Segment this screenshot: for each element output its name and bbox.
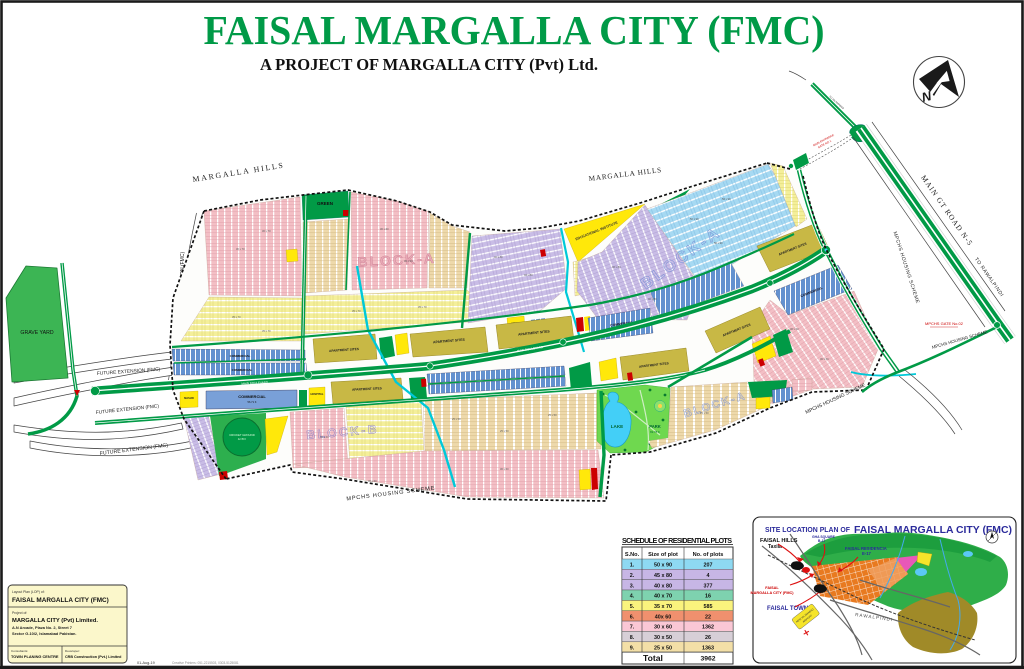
- svg-text:FUTURE EXTENSION (FMC): FUTURE EXTENSION (FMC): [96, 403, 160, 416]
- svg-text:16: 16: [705, 594, 711, 600]
- svg-text:S.No.: S.No.: [625, 552, 640, 558]
- svg-text:HOSPITAL: HOSPITAL: [311, 392, 324, 396]
- svg-text:E-17: E-17: [862, 551, 872, 556]
- svg-text:35 x 70: 35 x 70: [654, 604, 672, 610]
- svg-text:MPCHS HOUSING SCHEME: MPCHS HOUSING SCHEME: [931, 329, 988, 350]
- svg-text:B-17: B-17: [818, 539, 825, 543]
- svg-text:40 x 80: 40 x 80: [648, 297, 657, 301]
- svg-text:LAKE: LAKE: [611, 424, 624, 429]
- svg-text:25 x 50: 25 x 50: [500, 429, 509, 433]
- svg-text:SITE LOCATION PLAN OF: SITE LOCATION PLAN OF: [765, 525, 851, 534]
- svg-text:40 x 80: 40 x 80: [612, 265, 621, 269]
- svg-text:FAISAL MARGALLA CITY (FMC): FAISAL MARGALLA CITY (FMC): [204, 7, 825, 53]
- svg-text:25 x 50: 25 x 50: [654, 645, 672, 651]
- svg-text:40 x 70: 40 x 70: [654, 594, 672, 600]
- svg-text:50 x 90: 50 x 90: [714, 241, 723, 245]
- svg-text:30 x 60: 30 x 60: [380, 227, 389, 231]
- svg-text:25 x 50: 25 x 50: [452, 417, 461, 421]
- svg-text:GREEN: GREEN: [317, 201, 333, 206]
- svg-text:MASJID: MASJID: [184, 396, 194, 400]
- svg-text:A PROJECT OF MARGALLA CITY (Pv: A PROJECT OF MARGALLA CITY (Pvt) Ltd.: [260, 55, 598, 74]
- svg-text:Developer:: Developer:: [65, 649, 80, 653]
- svg-text:50 x 90: 50 x 90: [722, 197, 731, 201]
- svg-text:2.: 2.: [630, 573, 635, 579]
- svg-text:CRICKET GROUND: CRICKET GROUND: [229, 433, 254, 437]
- svg-text:30 x 60: 30 x 60: [500, 467, 509, 471]
- svg-text:30 x 70: 30 x 70: [236, 247, 245, 251]
- svg-text:45 x 80: 45 x 80: [654, 573, 672, 579]
- svg-text:Creative Printers: 051-2215503: Creative Printers: 051-2215503, 0303-512…: [172, 661, 239, 665]
- svg-text:30 x 70: 30 x 70: [262, 229, 271, 233]
- svg-text:3.: 3.: [630, 583, 635, 589]
- svg-text:Project of:: Project of:: [12, 611, 27, 615]
- svg-text:Total: Total: [643, 653, 663, 663]
- svg-text:30 x 60: 30 x 60: [368, 479, 377, 483]
- svg-text:GRAVE YARD: GRAVE YARD: [20, 330, 53, 336]
- svg-text:01-Aug-19: 01-Aug-19: [137, 661, 155, 665]
- svg-text:30 x 60: 30 x 60: [404, 259, 413, 263]
- svg-text:4.: 4.: [630, 594, 635, 600]
- svg-text:MPCHS GATE No.02: MPCHS GATE No.02: [925, 321, 964, 326]
- svg-text:MARGALLA CITY (FMC): MARGALLA CITY (FMC): [750, 591, 794, 595]
- svg-text:SCHEDULE OF RESIDENTIAL PLOTS: SCHEDULE OF RESIDENTIAL PLOTS: [622, 536, 732, 545]
- svg-text:FAISAL MARGALLA CITY (FMC): FAISAL MARGALLA CITY (FMC): [12, 597, 109, 604]
- svg-text:FAISAL: FAISAL: [765, 586, 779, 590]
- svg-text:3962: 3962: [700, 656, 715, 663]
- svg-text:30 x 60: 30 x 60: [654, 625, 672, 631]
- svg-text:Sector G-10/2, Islamabad Pakis: Sector G-10/2, Islamabad Pakistan.: [12, 631, 76, 636]
- svg-text:1362: 1362: [702, 625, 714, 631]
- svg-text:56.71 K: 56.71 K: [248, 400, 257, 404]
- svg-text:50 x 90: 50 x 90: [690, 217, 699, 221]
- svg-text:35 x 70: 35 x 70: [352, 309, 361, 313]
- svg-text:35 x 70: 35 x 70: [418, 305, 427, 309]
- svg-text:40 x 80: 40 x 80: [494, 255, 503, 259]
- svg-text:MARGALLA HILLS: MARGALLA HILLS: [192, 161, 285, 184]
- svg-text:207: 207: [704, 563, 713, 569]
- svg-text:8.: 8.: [630, 635, 635, 641]
- svg-text:MAIN GT ROAD N-5: MAIN GT ROAD N-5: [919, 173, 975, 247]
- svg-text:35 x 70: 35 x 70: [262, 329, 271, 333]
- svg-text:1363: 1363: [702, 645, 714, 651]
- svg-text:Consultants:: Consultants:: [11, 649, 28, 653]
- svg-text:COMMERCIAL: COMMERCIAL: [238, 394, 266, 399]
- svg-text:1.: 1.: [630, 563, 635, 569]
- svg-text:CRB Construction (Pvt.) Limite: CRB Construction (Pvt.) Limited: [65, 655, 122, 659]
- svg-text:30 x 60: 30 x 60: [320, 435, 329, 439]
- svg-text:PARK: PARK: [649, 424, 661, 429]
- svg-text:30 x 50: 30 x 50: [654, 635, 672, 641]
- svg-text:Layout Plan (LOP) of:: Layout Plan (LOP) of:: [12, 590, 45, 594]
- svg-text:COMMERCIAL: COMMERCIAL: [232, 368, 253, 372]
- svg-text:MPCHS HOUSING SCHEME: MPCHS HOUSING SCHEME: [891, 231, 920, 305]
- svg-text:6.: 6.: [630, 614, 635, 620]
- svg-text:40 x 80: 40 x 80: [524, 273, 533, 277]
- svg-text:40 x 80: 40 x 80: [654, 583, 672, 589]
- svg-text:25 x 50: 25 x 50: [548, 413, 557, 417]
- svg-text:No. of plots: No. of plots: [693, 552, 724, 558]
- svg-text:9.: 9.: [630, 645, 635, 651]
- svg-text:MARGALLA HILLS: MARGALLA HILLS: [588, 166, 662, 183]
- svg-text:40x 60: 40x 60: [655, 614, 672, 620]
- svg-text:Size of plot: Size of plot: [648, 552, 678, 558]
- svg-text:5.: 5.: [630, 604, 635, 610]
- svg-text:30 x 60: 30 x 60: [790, 327, 799, 331]
- svg-text:MARGALLA CITY (Pvt) Limited.: MARGALLA CITY (Pvt) Limited.: [12, 618, 98, 624]
- svg-text:A.N Arcade, Plaza No. 2, Stree: A.N Arcade, Plaza No. 2, Street 7: [12, 625, 72, 630]
- svg-text:35 x 70: 35 x 70: [232, 315, 241, 319]
- svg-text:585: 585: [704, 604, 713, 610]
- svg-text:22: 22: [705, 614, 711, 620]
- svg-text:7.: 7.: [630, 625, 635, 631]
- svg-text:COMMERCIAL: COMMERCIAL: [230, 354, 251, 358]
- svg-text:82.78 K: 82.78 K: [650, 430, 660, 434]
- svg-text:42.35 K: 42.35 K: [238, 438, 247, 441]
- svg-text:26: 26: [705, 635, 711, 641]
- svg-text:30 x 60: 30 x 60: [820, 357, 829, 361]
- svg-text:MPCHS HOUSING SCHEME: MPCHS HOUSING SCHEME: [346, 486, 435, 503]
- svg-text:25 x 50: 25 x 50: [700, 411, 709, 415]
- svg-text:377: 377: [704, 583, 713, 589]
- svg-text:50 x 90: 50 x 90: [654, 563, 672, 569]
- svg-text:TOWN PLANING CENTRE: TOWN PLANING CENTRE: [11, 654, 59, 659]
- svg-text:4: 4: [707, 573, 710, 579]
